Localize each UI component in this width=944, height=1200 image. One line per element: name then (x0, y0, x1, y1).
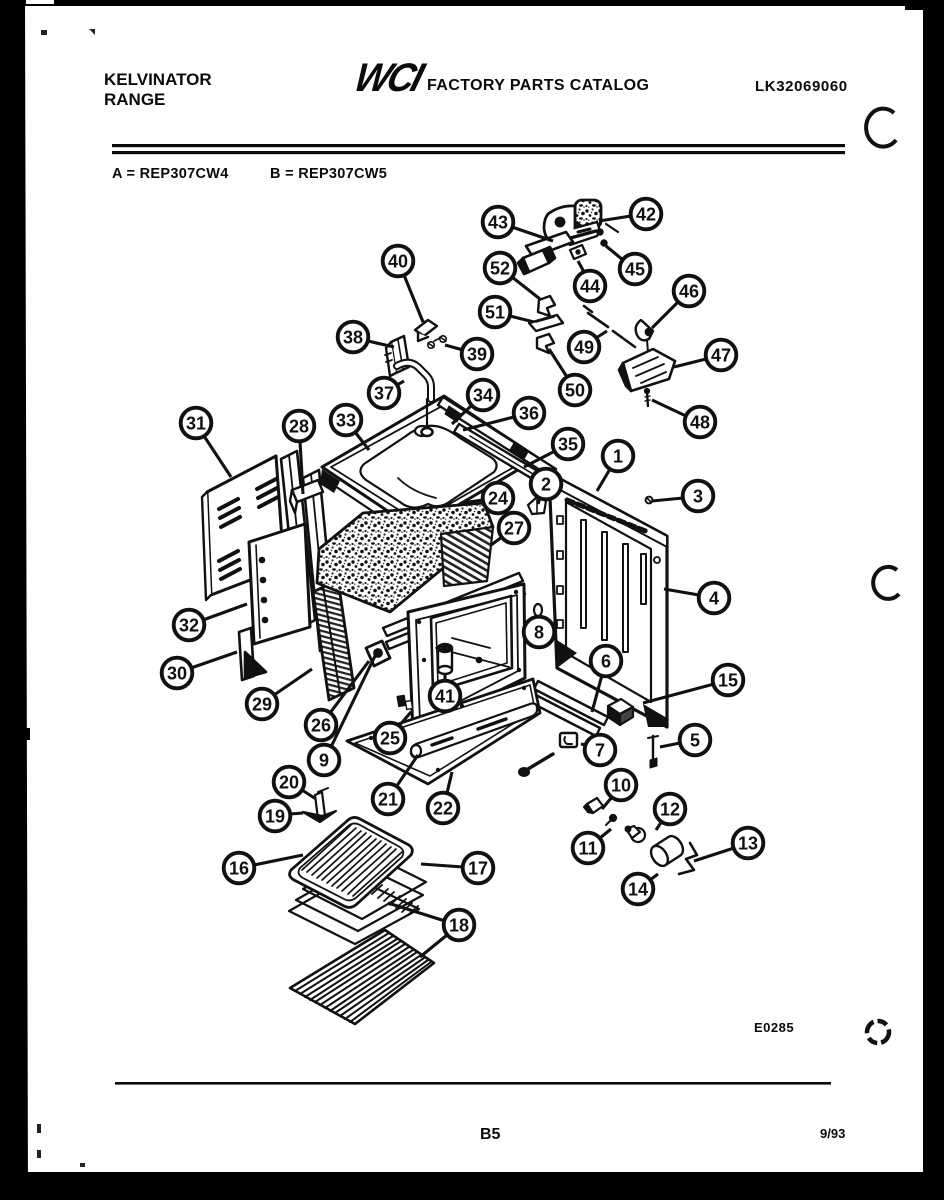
svg-text:26: 26 (311, 716, 331, 736)
svg-text:14: 14 (628, 880, 648, 900)
svg-text:1: 1 (613, 447, 623, 467)
svg-text:B = REP307CW5: B = REP307CW5 (270, 166, 387, 182)
svg-text:47: 47 (711, 346, 731, 366)
svg-text:11: 11 (578, 839, 597, 859)
svg-text:41: 41 (435, 687, 455, 707)
svg-text:21: 21 (378, 790, 398, 810)
svg-text:51: 51 (485, 303, 505, 323)
svg-text:37: 37 (374, 384, 394, 404)
svg-text:5: 5 (690, 731, 700, 751)
svg-text:32: 32 (179, 616, 199, 636)
svg-text:25: 25 (380, 729, 400, 749)
svg-text:13: 13 (738, 834, 758, 854)
svg-text:LK32069060: LK32069060 (755, 78, 848, 95)
svg-text:49: 49 (574, 338, 594, 358)
svg-text:27: 27 (504, 519, 524, 539)
svg-text:30: 30 (167, 664, 187, 684)
svg-text:33: 33 (336, 411, 356, 431)
svg-text:48: 48 (690, 413, 710, 433)
svg-text:A = REP307CW4: A = REP307CW4 (112, 166, 229, 182)
svg-text:B5: B5 (480, 1126, 501, 1143)
svg-text:46: 46 (679, 282, 699, 302)
svg-text:9/93: 9/93 (820, 1126, 845, 1141)
svg-text:E0285: E0285 (754, 1020, 794, 1035)
svg-text:38: 38 (343, 328, 363, 348)
svg-text:34: 34 (473, 386, 493, 406)
svg-text:39: 39 (467, 345, 487, 365)
svg-text:4: 4 (709, 589, 719, 609)
svg-text:31: 31 (186, 414, 206, 434)
svg-text:35: 35 (558, 435, 578, 455)
svg-text:19: 19 (265, 807, 285, 827)
svg-text:29: 29 (252, 695, 272, 715)
svg-text:2: 2 (541, 475, 551, 495)
svg-text:40: 40 (388, 252, 408, 272)
svg-text:KELVINATOR: KELVINATOR (104, 70, 212, 89)
svg-text:10: 10 (611, 776, 631, 796)
svg-text:17: 17 (468, 859, 488, 879)
svg-text:22: 22 (433, 799, 453, 819)
svg-text:18: 18 (449, 916, 469, 936)
svg-text:52: 52 (490, 259, 510, 279)
svg-text:24: 24 (488, 489, 508, 509)
svg-text:6: 6 (601, 652, 611, 672)
svg-text:20: 20 (279, 773, 299, 793)
svg-text:12: 12 (660, 800, 680, 820)
svg-text:36: 36 (519, 404, 539, 424)
svg-text:44: 44 (580, 277, 600, 297)
svg-text:45: 45 (625, 260, 645, 280)
svg-text:9: 9 (319, 751, 329, 771)
svg-text:3: 3 (693, 487, 703, 507)
svg-text:FACTORY PARTS CATALOG: FACTORY PARTS CATALOG (427, 77, 649, 94)
svg-text:RANGE: RANGE (104, 90, 165, 109)
svg-text:15: 15 (718, 671, 738, 691)
svg-text:42: 42 (636, 205, 656, 225)
svg-text:28: 28 (289, 417, 309, 437)
svg-text:16: 16 (229, 859, 249, 879)
svg-text:50: 50 (565, 381, 585, 401)
svg-text:43: 43 (488, 213, 508, 233)
svg-text:7: 7 (595, 741, 605, 761)
svg-text:8: 8 (534, 623, 544, 643)
